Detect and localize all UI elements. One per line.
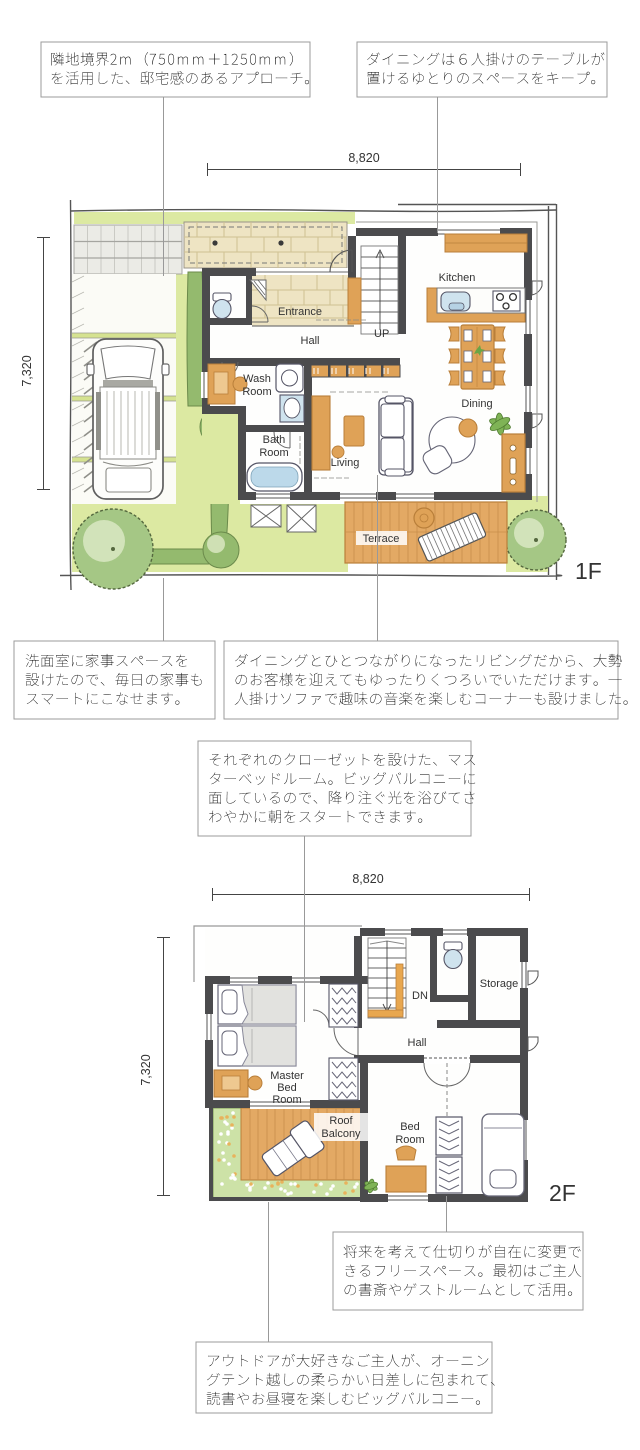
svg-text:Balcony: Balcony [321,1128,361,1140]
svg-text:Terrace: Terrace [363,533,400,545]
svg-text:Master: Master [270,1070,304,1082]
svg-text:Storage: Storage [480,978,519,990]
svg-text:DN: DN [412,990,428,1002]
svg-text:Entrance: Entrance [278,306,322,318]
svg-text:Bed: Bed [400,1121,420,1133]
svg-text:Room: Room [272,1094,301,1106]
svg-text:UP: UP [374,328,389,340]
svg-text:Room: Room [259,447,288,459]
svg-text:7,320: 7,320 [139,1054,153,1085]
svg-text:Room: Room [395,1134,424,1146]
svg-text:8,820: 8,820 [352,872,383,886]
svg-text:Wash: Wash [243,373,271,385]
svg-text:1F: 1F [575,558,602,584]
svg-text:Hall: Hall [408,1037,427,1049]
svg-text:Roof: Roof [329,1115,353,1127]
svg-text:Hall: Hall [301,335,320,347]
svg-text:8,820: 8,820 [348,151,379,165]
svg-text:Bath: Bath [263,434,286,446]
svg-text:Kitchen: Kitchen [439,272,476,284]
svg-text:7,320: 7,320 [20,355,34,386]
svg-text:Living: Living [331,457,360,469]
svg-text:Dining: Dining [461,398,492,410]
svg-text:2F: 2F [549,1180,576,1206]
svg-text:Bed: Bed [277,1082,297,1094]
svg-text:Room: Room [242,386,271,398]
